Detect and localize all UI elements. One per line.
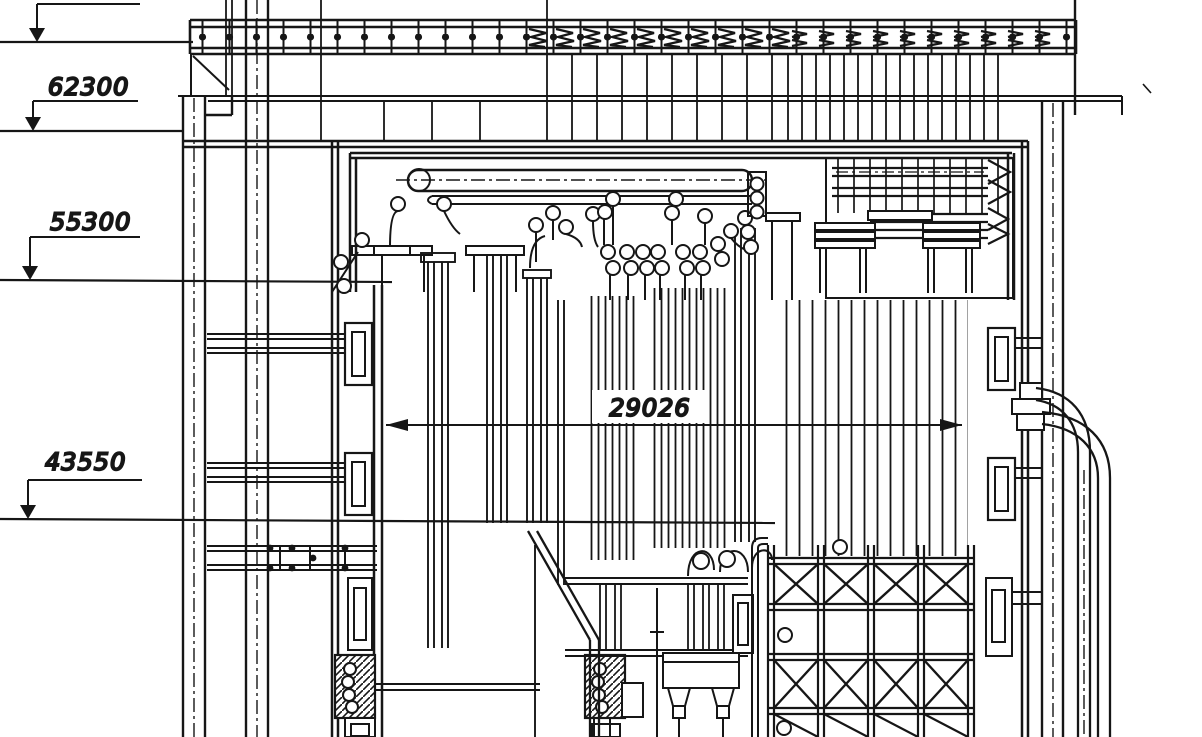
width-dimension-label: 29026: [609, 394, 690, 422]
elevation-label-62300: 62300: [48, 73, 129, 101]
elevation-marker-43550: 43550: [20, 448, 142, 519]
elevation-markers: 62300 55300 43550: [20, 4, 142, 519]
superheater-outlet: [815, 158, 1013, 298]
convective-tubes: [776, 300, 968, 556]
boiler-section-drawing: 62300 55300 43550: [0, 0, 1202, 737]
elevation-label-55300: 55300: [50, 208, 131, 236]
ceiling-truss: [190, 20, 1076, 95]
steam-drum-and-piping: [332, 169, 800, 300]
downcomer-pipes: [1036, 388, 1110, 737]
stray-mark: [1143, 84, 1151, 93]
dimension-arrow-left: [386, 419, 408, 431]
tube-loops: [688, 550, 772, 576]
elevation-label-43550: 43550: [45, 448, 126, 476]
elevation-marker-62300: 62300: [25, 73, 138, 131]
elevation-marker-55300: 55300: [22, 208, 140, 280]
truss-gusset: [193, 56, 229, 90]
elevation-marker-top: [29, 4, 140, 42]
superheater-headers: [815, 223, 980, 293]
roof-platform-lines: [178, 96, 1122, 115]
platform-truss: [207, 545, 377, 572]
center-cross-mark: [650, 625, 664, 640]
air-heater-grid: [768, 540, 974, 737]
buckstays-right: [986, 328, 1050, 656]
valve-fitting: [748, 172, 766, 219]
